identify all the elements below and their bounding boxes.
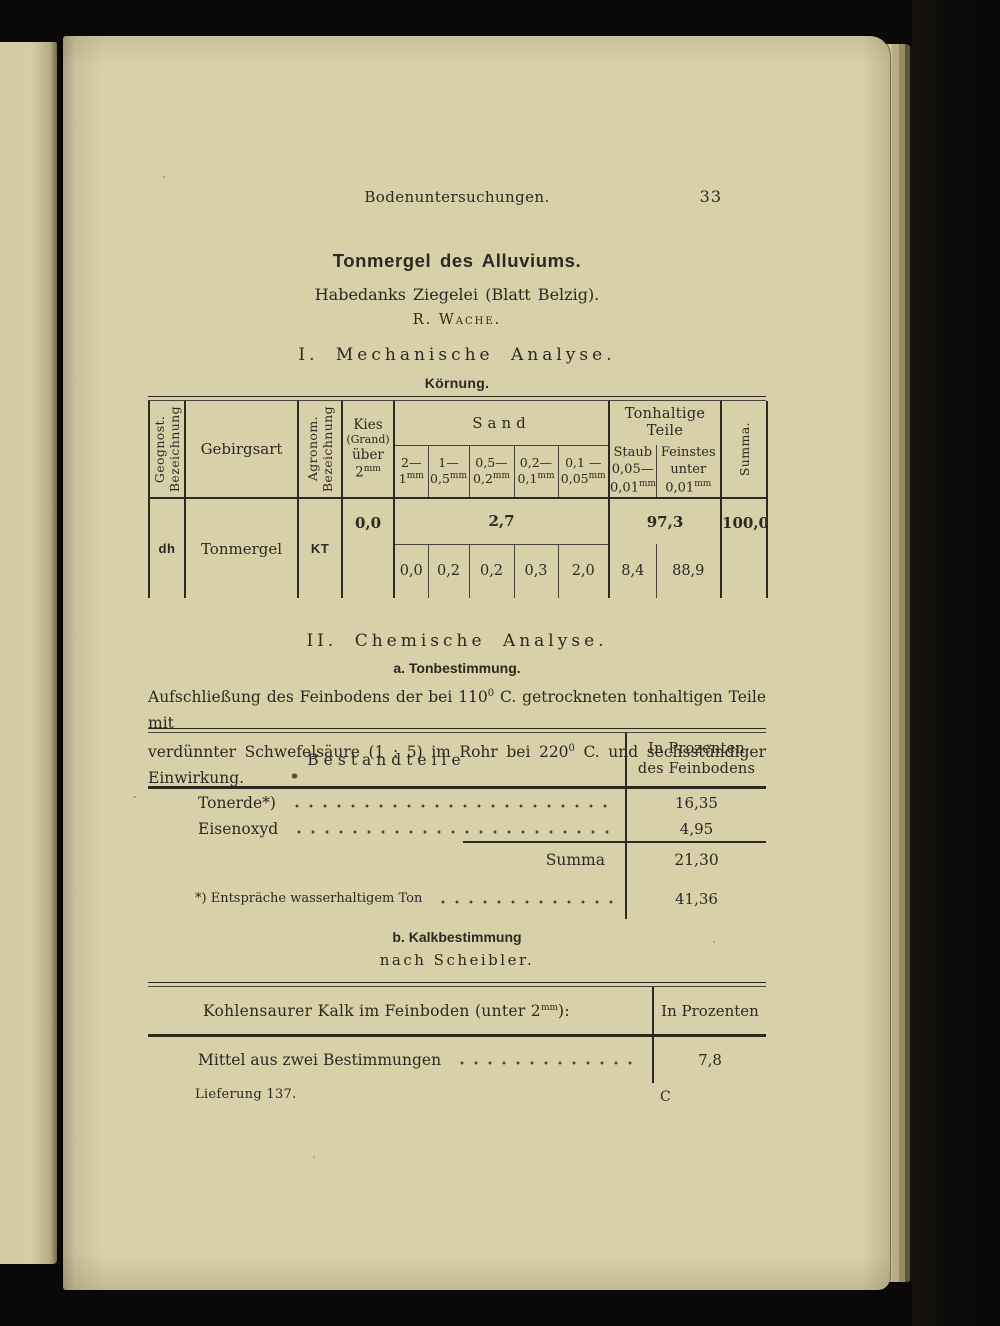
signature-mark: C	[660, 1089, 700, 1105]
staub-subcol-header: Staub 0,05— 0,01mm	[609, 445, 656, 498]
col-header-geognost: Geognost.Bezeichnung	[149, 401, 185, 498]
summa-vertical-label: Summa.	[737, 422, 752, 476]
footnote-value: 41,36	[625, 879, 766, 919]
col-header-agronom: Agronom.Bezeichnung	[298, 401, 342, 498]
col-header-summa: Summa.	[721, 401, 767, 498]
sand-subcol-4-header: 0,2— 0,1mm	[514, 445, 558, 498]
prozente-header: In Prozentendes Feinbodens	[625, 733, 766, 786]
dot-leader	[288, 798, 615, 814]
summa-value: 21,30	[625, 841, 766, 879]
scan-speck	[623, 456, 625, 458]
previous-page-edge	[0, 42, 57, 1264]
summa-label: Summa	[148, 841, 625, 879]
table-row: Eisenoxyd 4,95	[148, 817, 766, 841]
summa-value: 100,0	[721, 498, 767, 598]
kalk-header-label: Kohlensaurer Kalk im Feinboden (unter 2m…	[148, 987, 652, 1034]
sand-subcol-2-header: 1— 0,5mm	[428, 445, 469, 498]
bestandteile-table: Bestandteile In Prozentendes Feinbodens …	[148, 728, 766, 919]
kalk-data-row: Mittel aus zwei Bestimmungen 7,8	[148, 1037, 766, 1083]
kalk-header-row: Kohlensaurer Kalk im Feinboden (unter 2m…	[148, 987, 766, 1034]
page-subtitle: Habedanks Ziegelei (Blatt Belzig).	[148, 285, 766, 304]
page-content: Bodenuntersuchungen. 33 Tonmergel des Al…	[148, 36, 766, 1290]
sand-value-5: 2,0	[558, 544, 609, 598]
summa-row: Summa 21,30	[148, 841, 766, 879]
footnote-label: *) Entspräche wasserhaltigem Ton	[195, 891, 422, 906]
sand-group-header: Sand	[394, 401, 609, 445]
dot-leader	[434, 895, 615, 908]
nach-scheibler: nach Scheibler.	[148, 951, 766, 969]
footnote-row: *) Entspräche wasserhaltigem Ton 41,36	[148, 879, 766, 919]
lieferung-footer: Lieferung 137.	[195, 1087, 395, 1102]
tonhaltige-group-header: TonhaltigeTeile	[609, 401, 721, 445]
kies-line4: 2mm	[343, 464, 393, 481]
component-label: Tonerde*)	[198, 794, 276, 812]
component-label-cell: Tonerde*)	[148, 789, 625, 817]
footnote-label-cell: *) Entspräche wasserhaltigem Ton	[148, 879, 625, 919]
sand-total-value: 2,7	[394, 498, 609, 544]
tonhaltige-total-value: 97,3	[609, 498, 721, 544]
sand-subcol-5-header: 0,1 — 0,05mm	[558, 445, 609, 498]
kalk-row-value: 7,8	[652, 1037, 766, 1083]
sand-value-2: 0,2	[428, 544, 469, 598]
page-number: 33	[700, 187, 722, 206]
sand-value-4: 0,3	[514, 544, 558, 598]
section-1-heading: I. Mechanische Analyse.	[148, 345, 766, 365]
scan-speck	[713, 941, 715, 943]
geognost-vertical-label: Geognost.Bezeichnung	[152, 406, 182, 492]
kies-value: 0,0	[342, 498, 394, 598]
running-title: Bodenuntersuchungen.	[364, 188, 549, 206]
feinstes-subcol-header: Feinstes unter 0,01mm	[656, 445, 721, 498]
kalkbestimmung-heading: b. Kalkbestimmung	[148, 929, 766, 945]
book-cover	[912, 0, 1000, 1326]
kalk-row-label: Mittel aus zwei Bestimmungen	[198, 1051, 441, 1069]
row-gebirgsart-value: Tonmergel	[185, 498, 298, 598]
bestandteile-header: Bestandteile	[148, 733, 625, 786]
bestandteile-header-row: Bestandteile In Prozentendes Feinbodens	[148, 733, 766, 786]
row-agronom-value: KT	[298, 498, 342, 598]
sand-subcol-3-header: 0,5— 0,2mm	[469, 445, 514, 498]
page-title: Tonmergel des Alluviums.	[148, 250, 766, 272]
col-header-gebirgsart: Gebirgsart	[185, 401, 298, 498]
scanned-book-photo: { "colors":{"paper":"#d7d0a8","ink":"#2d…	[0, 0, 1000, 1326]
staub-value: 8,4	[609, 544, 656, 598]
sand-subcol-1-header: 2— 1mm	[394, 445, 428, 498]
component-value: 4,95	[625, 817, 766, 841]
author-name: R. Wache.	[148, 312, 766, 328]
scan-speck	[133, 796, 136, 798]
koernung-subheading: Körnung.	[148, 375, 766, 391]
kalk-prozente-header: In Prozenten	[652, 987, 766, 1034]
section-2-heading: II. Chemische Analyse.	[148, 631, 766, 651]
running-head: Bodenuntersuchungen. 33	[148, 188, 766, 206]
kies-line3: über	[343, 447, 393, 464]
component-value: 16,35	[625, 789, 766, 817]
kies-line1: Kies	[343, 417, 393, 434]
sand-value-1: 0,0	[394, 544, 428, 598]
component-label: Eisenoxyd	[198, 820, 278, 838]
kalk-table: Kohlensaurer Kalk im Feinboden (unter 2m…	[148, 982, 766, 1083]
mechanical-analysis-table: Geognost.Bezeichnung Gebirgsart Agronom.…	[148, 396, 766, 598]
feinstes-value: 88,9	[656, 544, 721, 598]
col-header-kies: Kies (Grand) über 2mm	[342, 401, 394, 498]
agronom-vertical-label: Agronom.Bezeichnung	[305, 406, 335, 492]
row-geognost-value: dh	[149, 498, 185, 598]
scan-speck	[163, 176, 165, 178]
sand-value-3: 0,2	[469, 544, 514, 598]
kalk-row-label-cell: Mittel aus zwei Bestimmungen	[148, 1037, 652, 1083]
component-label-cell: Eisenoxyd	[148, 817, 625, 841]
table-row: Tonerde*) 16,35	[148, 789, 766, 817]
kies-line2: (Grand)	[343, 433, 393, 447]
summa-partial-rule	[463, 841, 766, 843]
scan-speck	[313, 1156, 315, 1158]
ink-speck	[291, 773, 298, 779]
dot-leader	[290, 824, 615, 840]
dot-leader	[453, 1055, 642, 1071]
book-page: Bodenuntersuchungen. 33 Tonmergel des Al…	[63, 36, 890, 1290]
tonbestimmung-subheading: a. Tonbestimmung.	[148, 660, 766, 676]
